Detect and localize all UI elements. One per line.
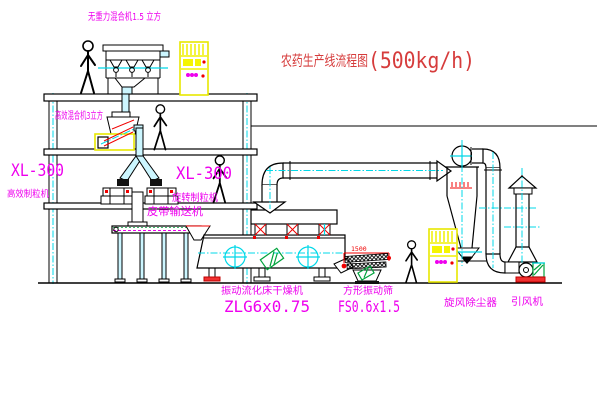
gravity-free-mixer xyxy=(98,45,169,94)
label-dryer-model: ZLG6x0.75 xyxy=(224,297,310,316)
label-granulator-left-model: XL-300 xyxy=(11,161,64,181)
hood-connector-1 xyxy=(255,224,266,235)
production-line-diagram: 农药生产线流程图 (500kg/h) 无重力混合机1.5 立方 高效混合机3立方… xyxy=(0,0,600,403)
granulator-left xyxy=(101,179,134,204)
label-sieve: 方形振动筛 xyxy=(343,284,393,297)
control-cabinet-upper xyxy=(180,42,208,95)
person-top-floor xyxy=(81,41,95,93)
label-belt-conveyor: 皮带输送机 xyxy=(147,204,203,218)
belt-conveyor xyxy=(112,226,201,282)
title-capacity: (500kg/h) xyxy=(368,49,475,74)
induced-draft-fan xyxy=(505,262,545,282)
vibrating-sieve xyxy=(342,253,391,284)
label-granulator-left: 高效制粒机 xyxy=(7,188,49,200)
label-sieve-model: FS0.6x1.5 xyxy=(338,297,400,316)
exhaust-duct xyxy=(254,161,451,213)
hood-connector-2 xyxy=(287,224,298,235)
title-text: 农药生产线流程图 xyxy=(281,53,368,70)
fluid-bed-dryer xyxy=(186,210,353,281)
flow-diagram-canvas: 农药生产线流程图 (500kg/h) 无重力混合机1.5 立方 高效混合机3立方… xyxy=(0,0,600,403)
label-high-efficiency-mixer: 高效混合机3立方 xyxy=(55,109,103,122)
fan-motor xyxy=(532,263,545,277)
cyclone-red-band xyxy=(450,182,472,188)
control-cabinet-lower xyxy=(429,229,457,282)
label-fan: 引风机 xyxy=(511,295,543,308)
hood-connector-3 xyxy=(319,224,330,235)
label-gravity-free-mixer: 无重力混合机1.5 立方 xyxy=(88,10,161,23)
label-dryer: 振动流化床干燥机 xyxy=(221,284,303,297)
label-cyclone: 旋风除尘器 xyxy=(444,296,497,309)
label-granulator-mid: 旋转制粒机 xyxy=(172,191,218,204)
dryer-hood xyxy=(251,210,337,235)
label-granulator-mid-model: XL-300 xyxy=(176,164,232,184)
person-ground-floor xyxy=(406,241,417,283)
dimension-sieve-1500: 1500 xyxy=(351,245,367,253)
person-second-floor xyxy=(154,105,166,150)
conveyor-legs xyxy=(115,233,191,282)
